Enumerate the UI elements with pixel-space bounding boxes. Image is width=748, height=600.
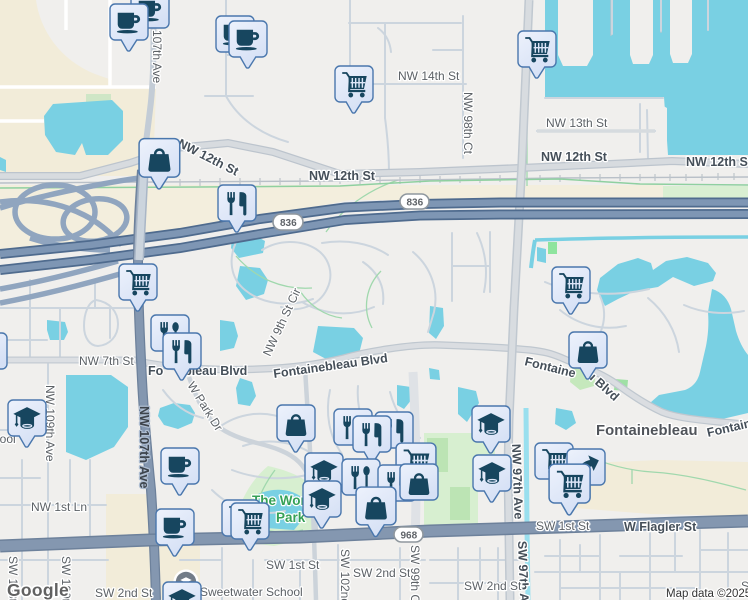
svg-text:NW 1st Ln: NW 1st Ln: [31, 500, 87, 514]
svg-text:NW 107th Ave: NW 107th Ave: [137, 406, 151, 488]
svg-text:Sweetwater School: Sweetwater School: [200, 585, 303, 599]
svg-text:Park: Park: [276, 510, 306, 525]
svg-text:Map data ©2025: Map data ©2025: [666, 588, 748, 600]
svg-text:NW 7th St: NW 7th St: [79, 354, 134, 368]
svg-text:SW 1st St: SW 1st St: [266, 558, 320, 572]
svg-text:NW 98th Ct: NW 98th Ct: [461, 92, 475, 155]
svg-text:SW 2nd St: SW 2nd St: [464, 579, 522, 593]
svg-text:107th Ave: 107th Ave: [150, 30, 164, 83]
svg-text:836: 836: [407, 198, 424, 209]
svg-text:NW 12th St: NW 12th St: [309, 169, 376, 183]
svg-text:SW 1st St: SW 1st St: [536, 519, 590, 533]
svg-text:968: 968: [401, 531, 418, 542]
svg-text:W Flagler St: W Flagler St: [624, 520, 697, 534]
svg-text:SW 2nd St: SW 2nd St: [353, 566, 411, 580]
svg-text:NW 13th St: NW 13th St: [546, 116, 608, 130]
svg-text:NW 14th St: NW 14th St: [398, 69, 460, 83]
svg-text:SW 99th Ct: SW 99th Ct: [408, 545, 422, 600]
svg-text:Fontainebleau: Fontainebleau: [596, 423, 698, 439]
svg-text:NW 12th S: NW 12th S: [686, 155, 748, 169]
svg-text:Google: Google: [7, 580, 69, 600]
svg-text:SW 102nd: SW 102nd: [338, 549, 352, 600]
svg-text:836: 836: [280, 218, 297, 229]
svg-text:NW 12th St: NW 12th St: [541, 150, 608, 164]
svg-text:SW 2nd St: SW 2nd St: [95, 586, 153, 600]
